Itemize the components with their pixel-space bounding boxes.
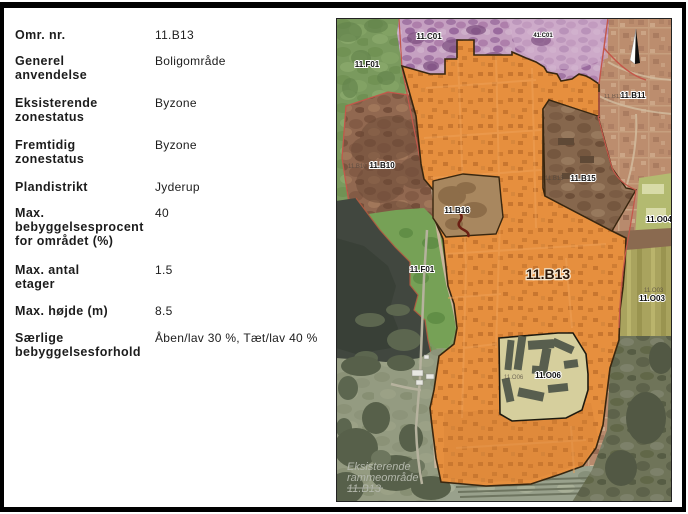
svg-text:11.O06: 11.O06	[535, 371, 561, 380]
svg-text:11.B13: 11.B13	[526, 266, 571, 282]
svg-text:41.C01: 41.C01	[533, 33, 553, 39]
svg-text:11.F01: 11.F01	[355, 60, 380, 69]
svg-text:11.B15: 11.B15	[570, 174, 596, 183]
svg-text:11.O03: 11.O03	[644, 288, 664, 294]
svg-text:11.B10: 11.B10	[369, 161, 395, 170]
svg-text:11.B15: 11.B15	[545, 176, 564, 182]
svg-text:11.B11: 11.B11	[604, 94, 623, 100]
svg-text:11.O06: 11.O06	[504, 375, 524, 381]
svg-text:11.B11: 11.B11	[621, 91, 646, 100]
svg-text:11.O04: 11.O04	[646, 215, 672, 224]
svg-text:11.C01: 11.C01	[416, 32, 442, 41]
svg-text:11.B16: 11.B16	[444, 206, 470, 215]
svg-text:11.O03: 11.O03	[639, 294, 665, 303]
svg-text:11.B10: 11.B10	[348, 164, 367, 170]
svg-text:11.B13: 11.B13	[347, 483, 382, 495]
svg-text:11.F01: 11.F01	[410, 265, 435, 274]
